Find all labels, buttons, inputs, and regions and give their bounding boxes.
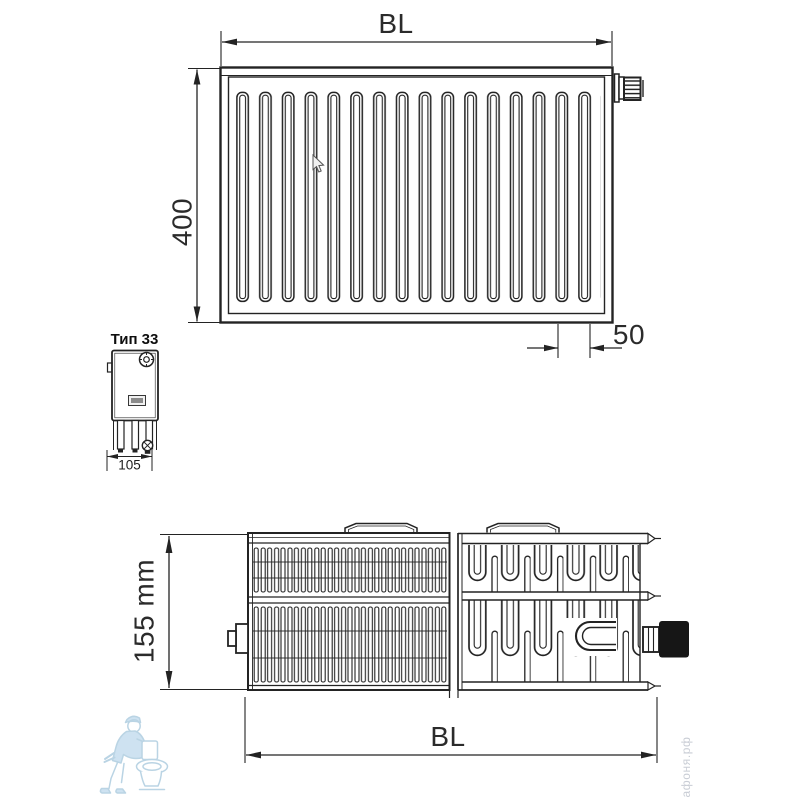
side-brand-plate [129,396,146,406]
plumber-with-toilet-icon [100,716,167,793]
section-right-half [458,533,689,690]
bracket-right [487,524,559,533]
drain-channel-detail [566,618,617,656]
front-width-label: BL [378,8,413,39]
side-fins [114,421,157,454]
front-view [221,68,644,323]
tapping-offset-label: 50 [613,319,645,350]
dimension-front-width: BL [221,8,612,66]
drawing-svg: BL 400 50 Тип 33 [0,0,800,800]
section-depth-label: 155 mm [129,559,160,663]
valve-connection-icon [615,74,644,102]
front-height-label: 400 [167,198,198,246]
dimension-tapping-offset: 50 [527,319,645,358]
type-name-label: Тип 33 [111,331,159,348]
dimension-section-width: BL [245,697,657,763]
side-valve-icon [140,353,154,367]
front-slot-grille [236,92,601,303]
radiator-technical-drawing: BL 400 50 Тип 33 [0,0,800,800]
dimension-section-depth: 155 mm [129,535,249,690]
section-width-label: BL [430,721,465,752]
side-depth-label: 105 [118,458,141,473]
bracket-left [345,524,417,533]
dimension-front-height: 400 [167,69,222,323]
section-valve-knob [643,621,689,658]
section-view [228,524,689,699]
left-connection-stub [236,624,248,653]
type-33-side-view: Тип 33 [108,331,159,454]
section-left-half [228,533,450,690]
brand-watermark-text: афоня.рф [679,736,693,797]
